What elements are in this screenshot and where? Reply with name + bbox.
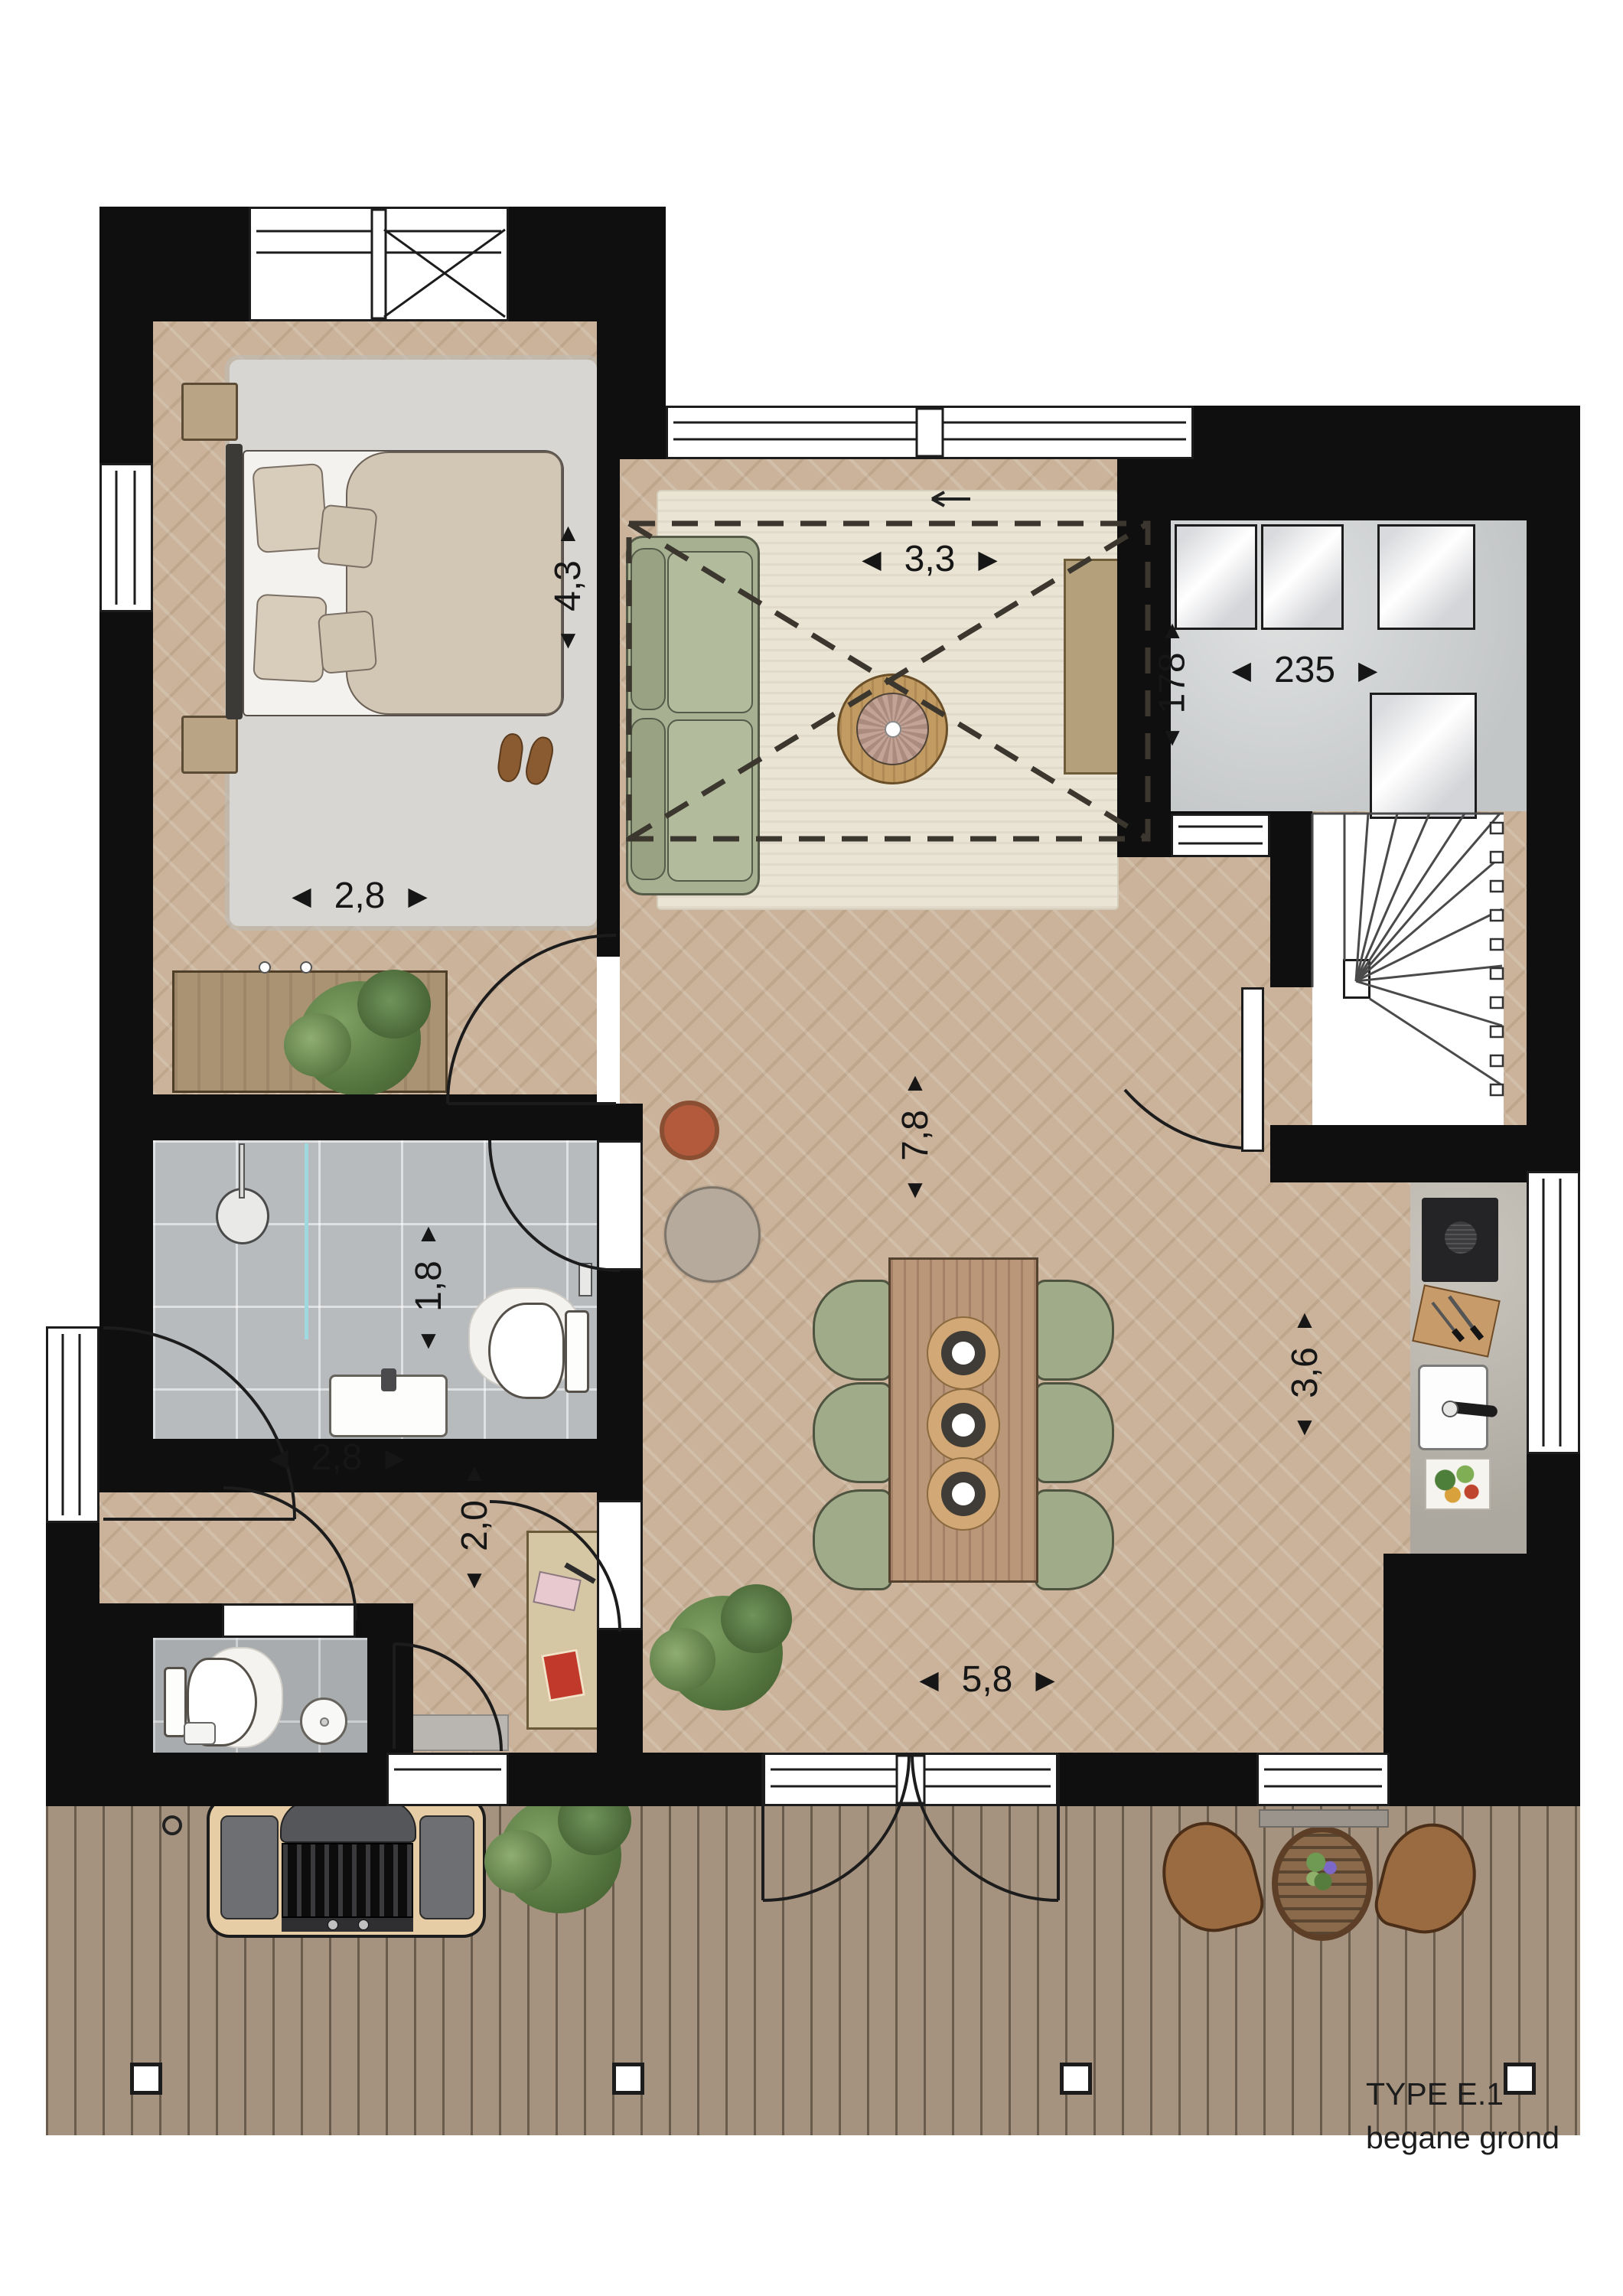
up-arrow-icon: ▲ xyxy=(1160,617,1185,642)
bed-headboard xyxy=(226,444,243,719)
dim-storage-width: ◀ 235 ▶ xyxy=(1198,645,1412,694)
wc-sink-drain xyxy=(320,1717,329,1727)
bedroom-side-window xyxy=(99,463,153,612)
wall xyxy=(597,1270,643,1439)
bbq-knob xyxy=(328,1919,338,1930)
bed-pillow xyxy=(253,594,328,683)
dim-storage-depth: ▲ 178 ▼ xyxy=(1134,591,1211,775)
sofa-seat-cushion xyxy=(667,719,753,882)
sofa-back-cushion xyxy=(631,548,666,710)
coffee-table-center xyxy=(885,721,901,738)
wall xyxy=(1527,406,1580,1171)
dim-bathroom-depth: ▲ 1,8 ▼ xyxy=(392,1182,465,1389)
dresser-knob xyxy=(259,961,271,974)
down-arrow-icon: ▼ xyxy=(556,627,581,652)
side-table-red xyxy=(660,1101,719,1160)
floorplan-page: ▲ 4,3 ▼ ◀ 2,8 ▶ ◀ 3,3 ▶ ◀ 235 ▶ ▲ 178 ▼ … xyxy=(0,0,1623,2296)
right-arrow-icon: ▶ xyxy=(978,546,997,572)
dim-living-width: ◀ 3,3 ▶ xyxy=(830,534,1029,583)
stairwell-floor xyxy=(1312,814,1504,1125)
pouf xyxy=(664,1186,761,1283)
living-top-glazing xyxy=(666,406,1194,459)
dim-kitchen-depth: ▲ 3,6 ▼ xyxy=(1268,1277,1341,1468)
plant xyxy=(499,1797,621,1913)
vegetable-plate xyxy=(1425,1458,1491,1510)
bed-pillow xyxy=(252,463,328,553)
dim-bedroom-width: ◀ 2,8 ▶ xyxy=(253,871,467,920)
wall xyxy=(99,612,153,1439)
bathroom-door-leaf xyxy=(597,1140,643,1270)
dim-hall-width: ◀ 2,8 ▶ xyxy=(226,1433,448,1482)
dim-value: 2,0 xyxy=(453,1500,495,1551)
right-arrow-icon: ▶ xyxy=(408,883,427,908)
bbq-lid xyxy=(280,1800,416,1843)
deck-post xyxy=(612,2063,644,2095)
plan-type-label: TYPE E.1 xyxy=(1366,2073,1559,2116)
right-arrow-icon: ▶ xyxy=(1358,657,1377,683)
appliance xyxy=(1377,524,1475,630)
left-arrow-icon: ◀ xyxy=(862,546,881,572)
hall-door-leaf xyxy=(597,1500,643,1630)
dim-value: 2,8 xyxy=(334,875,386,917)
wall xyxy=(597,1630,643,1753)
plan-title: TYPE E.1 begane grond xyxy=(1366,2073,1559,2161)
right-arrow-icon: ▶ xyxy=(1035,1667,1054,1692)
up-arrow-icon: ▲ xyxy=(416,1220,442,1245)
wall xyxy=(99,207,153,463)
bed-pillow-small xyxy=(318,610,378,674)
shower-arm xyxy=(239,1143,245,1199)
bedroom-top-window xyxy=(249,207,509,321)
bbq-grill xyxy=(282,1843,413,1918)
hob-vent xyxy=(1445,1221,1477,1254)
storage-passage xyxy=(1171,814,1270,857)
down-arrow-icon: ▼ xyxy=(1292,1414,1318,1439)
stair-door-leaf xyxy=(1241,987,1264,1152)
deck-drain xyxy=(162,1815,182,1835)
toilet-tank xyxy=(565,1310,589,1393)
dim-value: 5,8 xyxy=(962,1658,1013,1701)
left-arrow-icon: ◀ xyxy=(919,1667,938,1692)
dim-value: 1,8 xyxy=(407,1261,449,1312)
up-arrow-icon: ▲ xyxy=(556,520,581,545)
down-arrow-icon: ▼ xyxy=(416,1327,442,1352)
dining-chair xyxy=(813,1489,892,1590)
wall xyxy=(367,1603,413,1753)
dim-value: 2,8 xyxy=(311,1437,363,1479)
toilet xyxy=(488,1303,565,1399)
bistro-flowers xyxy=(1299,1843,1347,1898)
wall xyxy=(356,1603,367,1638)
up-arrow-icon: ▲ xyxy=(1292,1306,1318,1332)
kitchen-faucet-base xyxy=(1442,1401,1458,1417)
left-arrow-icon: ◀ xyxy=(292,883,311,908)
plant xyxy=(664,1596,783,1711)
dim-value: 178 xyxy=(1152,652,1194,713)
toilet-paper-holder xyxy=(578,1263,592,1296)
dim-hall-depth: ▲ 2,0 ▼ xyxy=(438,1430,511,1621)
dining-chair xyxy=(813,1280,892,1381)
pendant-bulb xyxy=(952,1342,975,1365)
left-arrow-icon: ◀ xyxy=(1232,657,1251,683)
wall xyxy=(99,1094,597,1140)
deck-post xyxy=(1060,2063,1092,2095)
hall-desk xyxy=(526,1531,599,1730)
bbq-knob xyxy=(358,1919,369,1930)
dim-value: 3,3 xyxy=(904,538,956,580)
kitchen-window xyxy=(1527,1171,1580,1454)
right-arrow-icon: ▶ xyxy=(385,1445,404,1470)
wall xyxy=(597,1439,643,1500)
bbq-control-bar xyxy=(282,1918,413,1932)
wall xyxy=(153,1603,222,1638)
shower-glass-screen xyxy=(305,1143,308,1339)
sofa-back-cushion xyxy=(631,718,666,880)
stair-newel-post xyxy=(1343,959,1370,999)
dim-value: 7,8 xyxy=(894,1110,936,1161)
wall xyxy=(1270,1125,1527,1182)
dim-value: 235 xyxy=(1274,649,1335,691)
plant xyxy=(298,981,421,1096)
pendant-bulb xyxy=(952,1414,975,1437)
bbq-side-tray xyxy=(220,1815,279,1919)
down-arrow-icon: ▼ xyxy=(1160,724,1185,749)
sofa-seat-cushion xyxy=(667,551,753,713)
dining-bottom-window xyxy=(1256,1753,1390,1806)
bed-pillow-small xyxy=(317,504,378,569)
dim-greatroom-width: ◀ 5,8 ▶ xyxy=(876,1655,1098,1704)
up-arrow-icon: ▲ xyxy=(462,1459,487,1485)
wall xyxy=(597,1104,643,1140)
back-door-frame xyxy=(386,1753,509,1806)
wc-door-leaf xyxy=(222,1603,356,1638)
wall xyxy=(1270,811,1312,987)
dim-value: 4,3 xyxy=(547,560,589,612)
wc-paper-roll xyxy=(184,1722,216,1745)
dim-bedroom-depth: ▲ 4,3 ▼ xyxy=(532,490,605,681)
up-arrow-icon: ▲ xyxy=(903,1069,928,1094)
down-arrow-icon: ▼ xyxy=(903,1176,928,1202)
down-arrow-icon: ▼ xyxy=(462,1567,487,1592)
dining-chair xyxy=(813,1382,892,1483)
dim-value: 3,6 xyxy=(1283,1347,1325,1398)
entrance-door-frame xyxy=(46,1326,99,1523)
bed-duvet xyxy=(346,452,562,715)
deck-post xyxy=(130,2063,162,2095)
dim-greatroom-depth: ▲ 7,8 ▼ xyxy=(878,1039,952,1231)
appliance xyxy=(1370,693,1477,819)
terrace-french-doors xyxy=(763,1753,1058,1806)
pendant-bulb xyxy=(952,1482,975,1505)
deck-mat xyxy=(1259,1809,1389,1828)
left-arrow-icon: ◀ xyxy=(269,1445,288,1470)
bbq-side-tray xyxy=(419,1815,474,1919)
appliance xyxy=(1261,524,1344,630)
nightstand xyxy=(181,716,238,774)
dresser-knob xyxy=(300,961,312,974)
nightstand xyxy=(181,383,238,441)
plan-floor-label: begane grond xyxy=(1366,2116,1559,2160)
